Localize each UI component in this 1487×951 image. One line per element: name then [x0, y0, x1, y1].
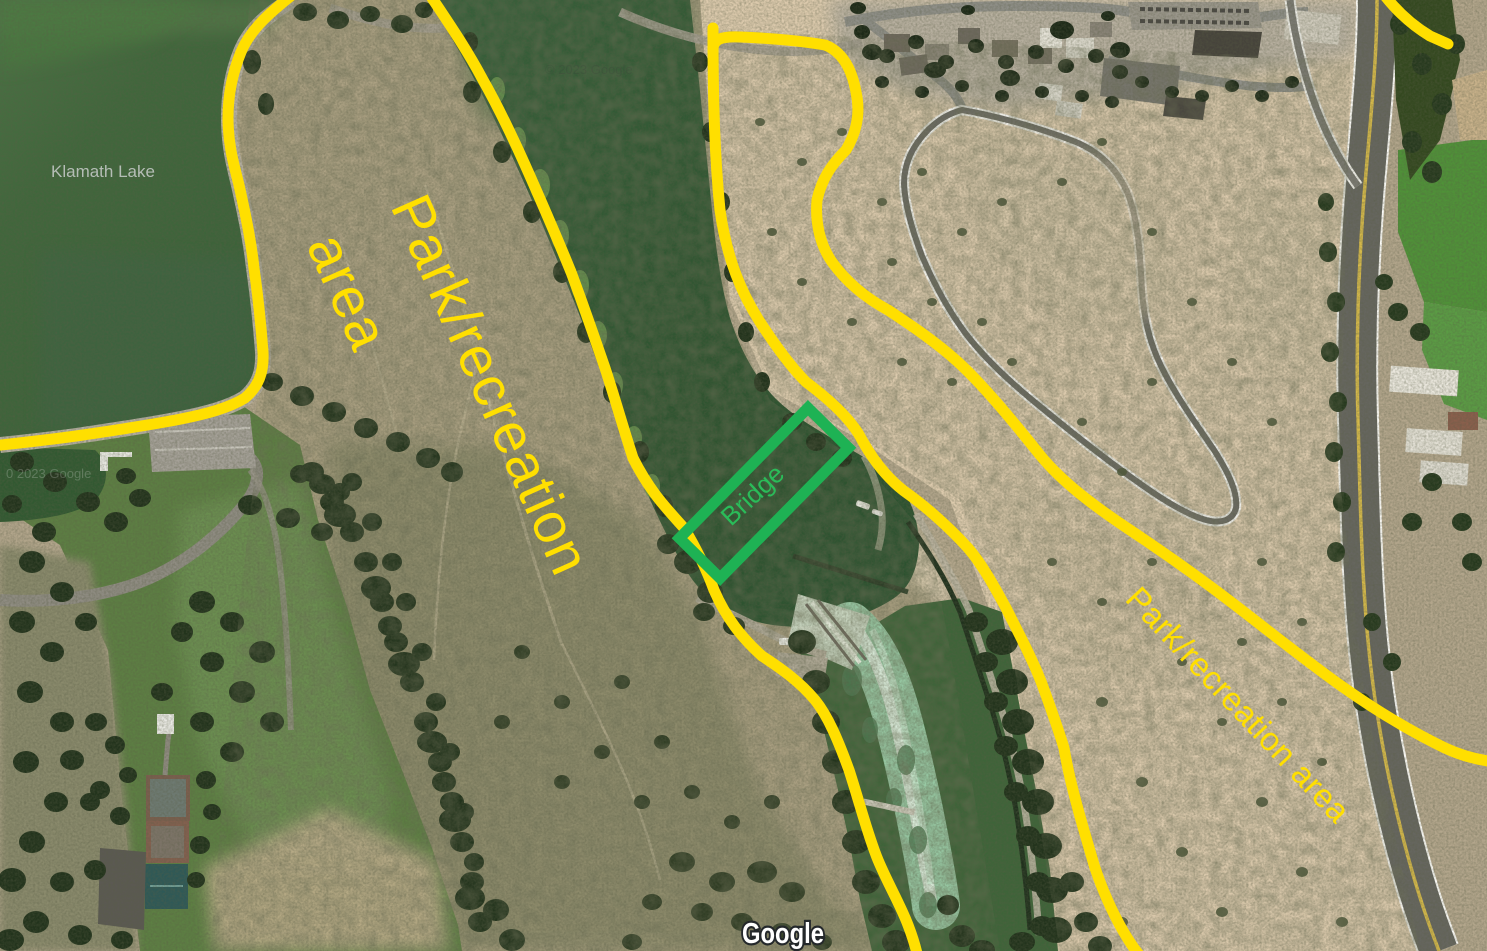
svg-text:Google: Google — [742, 918, 824, 950]
svg-text:0 2023 Google: 0 2023 Google — [6, 466, 91, 481]
svg-text:© 2023 Google: © 2023 Google — [545, 62, 633, 77]
svg-text:Klamath Lake: Klamath Lake — [51, 162, 155, 181]
